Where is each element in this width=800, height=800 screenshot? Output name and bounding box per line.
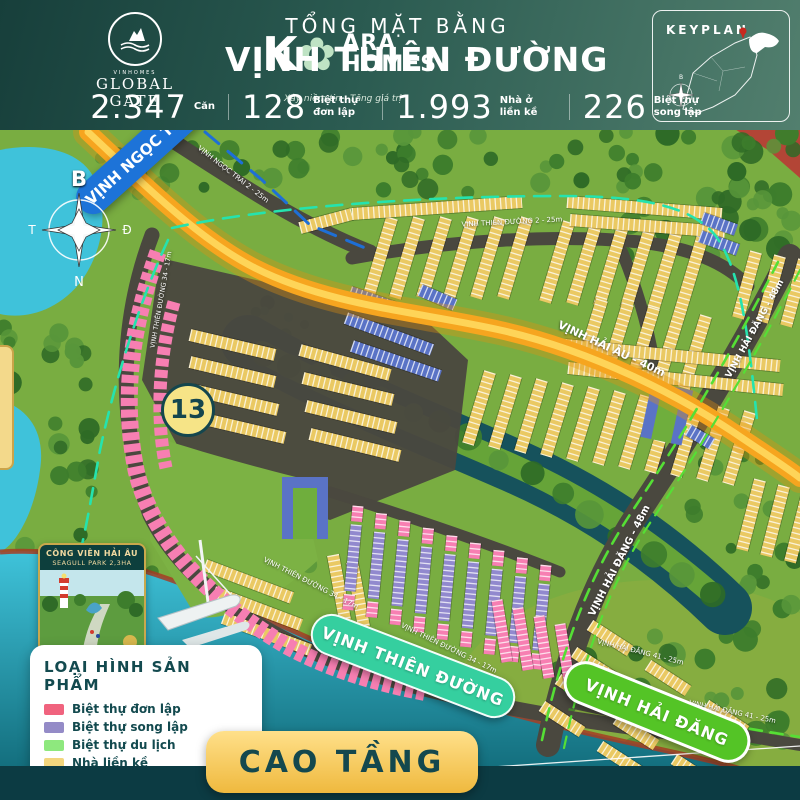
park-subname: SEAGULL PARK 2,3HA [42, 559, 142, 567]
compass-south-label: N [74, 275, 84, 290]
keyplan-box[interactable]: KEYPLAN B [652, 10, 790, 122]
masterplan-page: VỊNH NGỌC TRAI 2 - 25mVỊNH THIÊN ĐƯỜNG 2… [0, 0, 800, 800]
title-small: TỔNG MẶT BẰNG [225, 14, 570, 38]
stat-total: 2.347 Căn [90, 88, 215, 126]
title-large: VỊNH THIÊN ĐƯỜNG [225, 40, 570, 79]
legend-swatch-du-lich [44, 740, 64, 751]
lighthouse-icon [59, 574, 69, 609]
global-gate-logo-icon [108, 12, 162, 66]
seagull-park-card-header: CÔNG VIÊN HẢI ÂU SEAGULL PARK 2,3HA [40, 545, 144, 570]
compass-east-label: Đ [122, 223, 131, 237]
legend-swatch-song-lap [44, 722, 64, 733]
commercial-building [282, 477, 328, 539]
stat-don-lap: 128 Biệt thự đơn lập [242, 88, 369, 126]
seagull-park-card[interactable]: CÔNG VIÊN HẢI ÂU SEAGULL PARK 2,3HA [38, 543, 146, 653]
header: VINHOMES GLOBAL GATE K✿ ARA HOMES Xây ni… [0, 0, 800, 130]
legend-item-don-lap: Biệt thự đơn lập [44, 702, 248, 716]
legend-label: Biệt thự du lịch [72, 738, 176, 752]
keyplan-map: B [653, 11, 788, 119]
keyplan-compass-icon: B [668, 74, 694, 108]
compass-rose-icon: B T Đ N [22, 162, 138, 302]
zone-badge-13[interactable]: 13 [161, 383, 215, 437]
stat-lien-ke: 1.993 Nhà ở liền kề [396, 88, 556, 126]
legend-swatch-don-lap [44, 704, 64, 715]
legend-title: LOẠI HÌNH SẢN PHẨM [44, 658, 248, 694]
park-illustration [40, 570, 144, 653]
legend-label: Biệt thự đơn lập [72, 702, 181, 716]
legend-label: Biệt thự song lập [72, 720, 188, 734]
compass-west-label: T [27, 223, 36, 237]
page-title: TỔNG MẶT BẰNG VỊNH THIÊN ĐƯỜNG [225, 14, 570, 79]
side-inset-card [0, 345, 14, 470]
svg-text:B: B [679, 74, 683, 81]
park-name: CÔNG VIÊN HẢI ÂU [42, 549, 142, 558]
cao-tang-button[interactable]: CAO TẦNG [206, 731, 478, 793]
compass-north-label: B [71, 167, 87, 191]
